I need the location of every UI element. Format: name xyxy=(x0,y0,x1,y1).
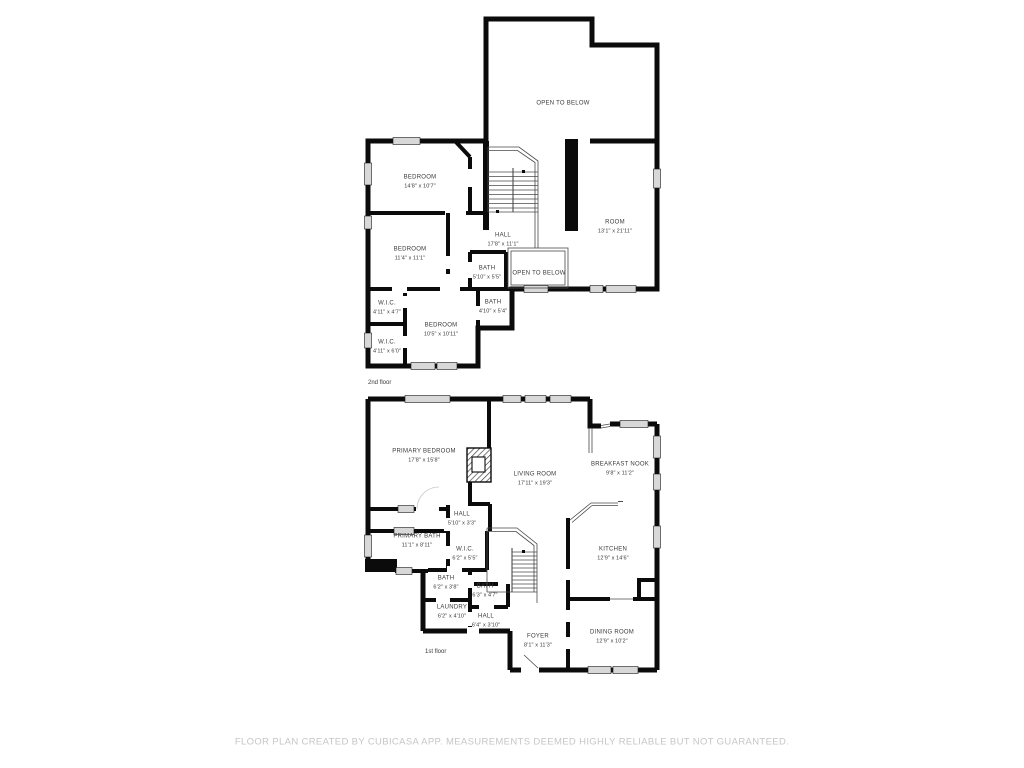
second-floor-plan xyxy=(365,19,661,370)
room-label-wic-1: W.I.C. 4'11" x 4'7" xyxy=(373,299,401,316)
room-label-primary-bath: PRIMARY BATH 11'1" x 8'11" xyxy=(393,532,440,549)
room-label-bedroom-3: BEDROOM 10'5" x 10'11" xyxy=(424,321,458,338)
room-label-bedroom-2: BEDROOM 11'4" x 11'1" xyxy=(394,245,427,262)
disclaimer-text: FLOOR PLAN CREATED BY CUBICASA APP. MEAS… xyxy=(235,737,789,748)
second-floor-caption: 2nd floor xyxy=(368,380,391,386)
room-label-wic-2: W.I.C. 4'11" x 6'0" xyxy=(373,338,401,355)
room-label-room: ROOM 13'1" x 21'11" xyxy=(598,218,632,235)
fireplace xyxy=(467,448,491,482)
room-label-bath-2f-hall: BATH 5'10" x 5'5" xyxy=(473,264,501,281)
room-label-kitchen: KITCHEN 12'9" x 14'6" xyxy=(597,545,628,562)
room-label-foyer: FOYER 8'1" x 11'3" xyxy=(524,632,552,649)
room-label-dining-room: DINING ROOM 12'9" x 10'2" xyxy=(590,628,634,645)
room-label-bath-1f-a: BATH 6'2" x 3'8" xyxy=(433,574,458,591)
first-floor-caption: 1st floor xyxy=(425,649,446,655)
room-label-bath-2f-annex: BATH 4'10" x 5'4" xyxy=(479,298,507,315)
room-label-hall-1f-b: HALL 6'4" x 3'10" xyxy=(472,612,500,629)
room-label-open-to-below-large: OPEN TO BELOW xyxy=(536,100,589,109)
room-label-open-to-below-small: OPEN TO BELOW xyxy=(512,270,565,279)
room-label-primary-bedroom: PRIMARY BEDROOM 17'8" x 15'8" xyxy=(392,447,456,464)
room-label-hall-1f-a: HALL 5'10" x 3'3" xyxy=(448,510,476,527)
room-label-bedroom-1: BEDROOM 14'8" x 10'7" xyxy=(404,173,437,190)
room-label-hall-2f: HALL 17'8" x 11'1" xyxy=(487,231,518,248)
double-height-wall xyxy=(565,139,578,231)
room-label-breakfast-nook: BREAKFAST NOOK 9'8" x 11'2" xyxy=(591,460,649,477)
room-label-wic-1f: W.I.C. 6'2" x 5'5" xyxy=(452,545,477,562)
room-label-bath-1f-b: BATH 6'3" x 4'7" xyxy=(472,582,497,599)
room-label-living-room: LIVING ROOM 17'11" x 19'3" xyxy=(514,470,557,487)
floor-plan-drawing xyxy=(0,0,1024,768)
floor-plan-page: OPEN TO BELOW BEDROOM 14'8" x 10'7" HALL… xyxy=(0,0,1024,768)
room-label-laundry: LAUNDRY 6'2" x 4'10" xyxy=(437,603,467,620)
